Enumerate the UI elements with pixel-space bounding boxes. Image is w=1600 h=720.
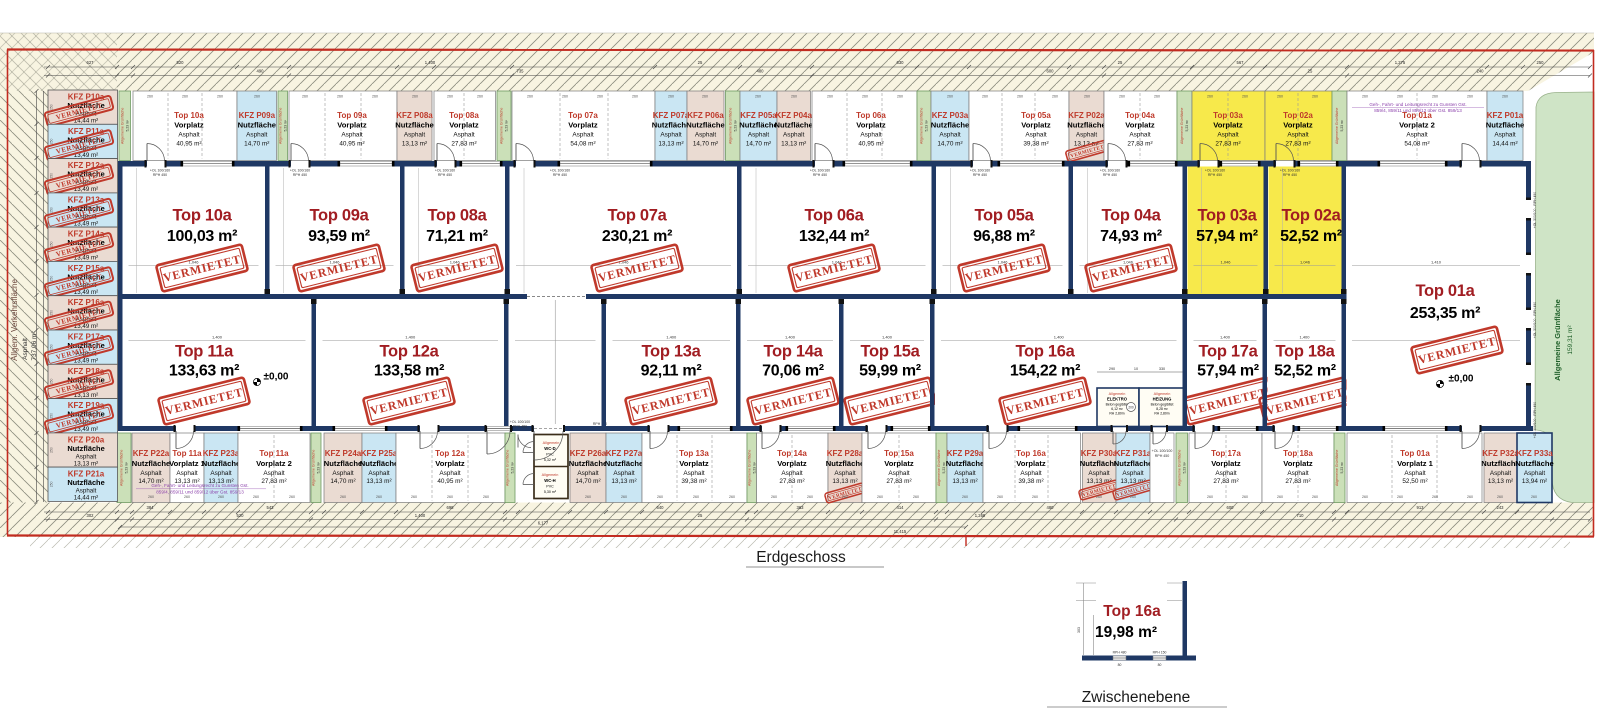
svg-text:913: 913: [1417, 505, 1425, 510]
svg-text:260: 260: [562, 95, 568, 99]
svg-text:13,13 m²: 13,13 m²: [611, 478, 636, 485]
svg-text:HEIZUNG: HEIZUNG: [1153, 397, 1172, 402]
svg-text:260: 260: [148, 495, 154, 499]
svg-text:Nutzfläche: Nutzfläche: [324, 459, 362, 468]
svg-text:230,21 m²: 230,21 m²: [602, 228, 672, 245]
svg-text:93,59 m²: 93,59 m²: [308, 228, 370, 245]
svg-text:260: 260: [1032, 495, 1038, 499]
svg-text:Asphalt: Asphalt: [954, 470, 976, 477]
svg-text:260: 260: [1312, 495, 1318, 499]
svg-text:25: 25: [698, 513, 703, 518]
svg-text:Asphalt: Asphalt: [76, 488, 97, 495]
svg-text:RPH 450: RPH 450: [293, 173, 307, 177]
svg-text:KFZ P28a: KFZ P28a: [827, 449, 864, 458]
svg-text:1,400: 1,400: [785, 335, 796, 340]
svg-text:Top 17a: Top 17a: [1211, 449, 1241, 458]
svg-text:Nutzfläche: Nutzfläche: [1515, 459, 1553, 468]
svg-text:Allgemeine Grünfläche: Allgemeine Grünfläche: [1177, 450, 1181, 486]
svg-text:1,046: 1,046: [1300, 260, 1311, 265]
svg-text:Asphalt: Asphalt: [1287, 470, 1309, 477]
svg-text:1,400: 1,400: [415, 513, 426, 518]
svg-text:Top 11a: Top 11a: [175, 343, 234, 361]
svg-text:Asphalt: Asphalt: [210, 470, 232, 477]
svg-text:260: 260: [1362, 95, 1368, 99]
svg-text:260: 260: [1207, 495, 1213, 499]
svg-text:14,70 m²: 14,70 m²: [693, 141, 718, 148]
svg-text:250: 250: [50, 379, 54, 385]
svg-text:27,83 m²: 27,83 m²: [1213, 478, 1238, 485]
svg-text:±0,00: ±0,00: [1449, 374, 1474, 385]
svg-text:Top 08a: Top 08a: [427, 207, 487, 225]
svg-text:Asphalt: Asphalt: [783, 132, 805, 139]
svg-text:260: 260: [1397, 495, 1403, 499]
svg-text:71,21 m²: 71,21 m²: [426, 228, 488, 245]
svg-text:KFZ P09a: KFZ P09a: [239, 111, 276, 120]
svg-text:13,13 m²: 13,13 m²: [1488, 478, 1513, 485]
svg-text:Top 11a: Top 11a: [259, 449, 289, 458]
svg-text:250: 250: [50, 104, 54, 110]
svg-text:Asphalt: Asphalt: [660, 132, 682, 139]
svg-text:250: 250: [50, 139, 54, 145]
svg-text:100,03 m²: 100,03 m²: [167, 228, 237, 245]
svg-text:260: 260: [1432, 495, 1438, 499]
svg-text:13,13 m²: 13,13 m²: [781, 141, 806, 148]
svg-text:Nutzfläche: Nutzfläche: [652, 121, 690, 130]
svg-text:39,38 m²: 39,38 m²: [1018, 478, 1043, 485]
svg-text:260: 260: [913, 495, 919, 499]
svg-text:133,63 m²: 133,63 m²: [169, 363, 239, 380]
svg-text:260: 260: [947, 95, 953, 99]
svg-text:KFZ P24a: KFZ P24a: [325, 449, 362, 458]
svg-text:Top 09a: Top 09a: [337, 111, 367, 120]
svg-text:Top 05a: Top 05a: [1021, 111, 1051, 120]
svg-text:260: 260: [1467, 95, 1473, 99]
svg-text:Vorplatz: Vorplatz: [174, 121, 204, 130]
svg-text:260: 260: [729, 495, 735, 499]
svg-text:260: 260: [657, 495, 663, 499]
svg-text:Asphalt: Asphalt: [263, 470, 285, 477]
svg-text:57,94 m²: 57,94 m²: [1196, 228, 1258, 245]
svg-text:Top 18a: Top 18a: [1275, 343, 1335, 361]
svg-text:Asphalt: Asphalt: [860, 132, 882, 139]
svg-text:260: 260: [1242, 495, 1248, 499]
svg-text:40,95 m²: 40,95 m²: [339, 141, 364, 148]
svg-text:260: 260: [376, 495, 382, 499]
svg-text:Asphalt: Asphalt: [404, 132, 426, 139]
svg-text:KFZ P06a: KFZ P06a: [687, 111, 724, 120]
svg-text:Allgemeine Grünfläche: Allgemeine Grünfläche: [1335, 450, 1339, 486]
svg-text:RH 2,80m: RH 2,80m: [1109, 412, 1124, 416]
svg-text:KFZ P27a: KFZ P27a: [606, 449, 643, 458]
svg-text:+OL 100/160: +OL 100/160: [550, 169, 570, 173]
svg-text:260: 260: [337, 95, 343, 99]
svg-text:5,32 m²: 5,32 m²: [544, 458, 557, 462]
svg-text:Allgemein: Allgemein: [542, 473, 559, 477]
svg-text:14,44 m²: 14,44 m²: [74, 495, 98, 502]
svg-text:RPH 450: RPH 450: [1103, 173, 1117, 177]
svg-text:520: 520: [237, 513, 245, 518]
svg-text:27,83 m²: 27,83 m²: [261, 478, 286, 485]
svg-text:70,06 m²: 70,06 m²: [762, 363, 824, 380]
svg-text:+OL 100/160: +OL 100/160: [1100, 169, 1120, 173]
svg-text:14,70 m²: 14,70 m²: [937, 141, 962, 148]
svg-text:159,31 m²: 159,31 m²: [1567, 325, 1574, 355]
svg-text:Vorplatz: Vorplatz: [1283, 121, 1313, 130]
svg-text:260: 260: [632, 95, 638, 99]
svg-text:13,13 m²: 13,13 m²: [366, 478, 391, 485]
svg-text:Nutzfläche: Nutzfläche: [686, 121, 724, 130]
svg-text:260: 260: [447, 95, 453, 99]
svg-text:5,23 m²: 5,23 m²: [511, 461, 515, 473]
svg-text:260: 260: [1017, 95, 1023, 99]
svg-text:+OL 100/100: +OL 100/100: [1152, 449, 1173, 453]
svg-text:260: 260: [527, 95, 533, 99]
svg-text:Top 12a: Top 12a: [435, 449, 465, 458]
svg-text:Nutzfläche: Nutzfläche: [605, 459, 643, 468]
svg-text:260: 260: [621, 495, 627, 499]
svg-text:260: 260: [897, 95, 903, 99]
svg-text:Allgemeine Grünfläche: Allgemeine Grünfläche: [1180, 108, 1184, 144]
svg-text:200: 200: [1128, 406, 1134, 410]
svg-text:PVC: PVC: [546, 485, 554, 489]
svg-text:260: 260: [477, 95, 483, 99]
svg-text:1,400: 1,400: [1299, 335, 1310, 340]
svg-text:Top 10a: Top 10a: [172, 207, 232, 225]
svg-text:627: 627: [87, 60, 95, 65]
svg-text:5,23 m²: 5,23 m²: [125, 119, 129, 131]
svg-text:260: 260: [597, 95, 603, 99]
svg-text:Vorplatz 1: Vorplatz 1: [1397, 459, 1434, 468]
svg-text:±0,00: ±0,00: [264, 372, 289, 383]
svg-text:250: 250: [50, 481, 54, 487]
svg-text:260: 260: [1397, 95, 1403, 99]
svg-text:Nutzfläche: Nutzfläche: [67, 444, 104, 453]
svg-text:260: 260: [254, 95, 260, 99]
svg-text:250: 250: [50, 413, 54, 419]
svg-text:260: 260: [1362, 495, 1368, 499]
svg-text:260: 260: [807, 495, 813, 499]
svg-text:13,13 m²: 13,13 m²: [952, 478, 977, 485]
svg-text:Top 02a: Top 02a: [1283, 111, 1313, 120]
svg-text:Vorplatz: Vorplatz: [884, 459, 914, 468]
svg-text:Asphalt: Asphalt: [140, 470, 162, 477]
svg-text:1,400: 1,400: [425, 60, 436, 65]
svg-text:260: 260: [1154, 95, 1160, 99]
svg-text:54,08 m²: 54,08 m²: [570, 141, 595, 148]
svg-text:Allgemein: Allgemein: [1154, 392, 1171, 396]
svg-text:+OL 300/100 - RPH 490: +OL 300/100 - RPH 490: [1533, 302, 1537, 338]
svg-text:Top 16a: Top 16a: [1015, 343, 1075, 361]
svg-text:132,44 m²: 132,44 m²: [799, 228, 869, 245]
svg-text:260: 260: [1242, 95, 1248, 99]
svg-text:1,275: 1,275: [1395, 60, 1406, 65]
svg-text:260: 260: [585, 495, 591, 499]
svg-text:543: 543: [267, 505, 275, 510]
svg-text:+OL 100/100: +OL 100/100: [510, 420, 530, 424]
svg-text:Nutzfläche: Nutzfläche: [238, 121, 276, 130]
svg-text:Erdgeschoss: Erdgeschoss: [756, 549, 846, 566]
svg-text:Vorplatz: Vorplatz: [435, 459, 465, 468]
svg-text:Top 02a: Top 02a: [1281, 207, 1341, 225]
svg-text:Asphalt: Asphalt: [341, 132, 363, 139]
svg-text:19,98 m²: 19,98 m²: [1095, 624, 1157, 641]
svg-text:6,177: 6,177: [538, 521, 549, 526]
svg-text:Vorplatz: Vorplatz: [777, 459, 807, 468]
svg-text:Top 07a: Top 07a: [607, 207, 667, 225]
svg-text:490: 490: [257, 69, 265, 74]
svg-text:59,99 m²: 59,99 m²: [859, 363, 921, 380]
svg-text:Vorplatz: Vorplatz: [679, 459, 709, 468]
svg-text:Top 13a: Top 13a: [679, 449, 709, 458]
svg-text:6,12 m²: 6,12 m²: [1111, 407, 1123, 411]
svg-text:260: 260: [483, 495, 489, 499]
svg-text:KFZ P08a: KFZ P08a: [396, 111, 433, 120]
svg-text:Top 16a: Top 16a: [1016, 449, 1046, 458]
svg-text:40,95 m²: 40,95 m²: [176, 141, 201, 148]
svg-text:Asphalt: Asphalt: [178, 132, 200, 139]
svg-text:Top 01a: Top 01a: [1415, 282, 1475, 300]
svg-text:260: 260: [1277, 495, 1283, 499]
svg-text:Top 17a: Top 17a: [1198, 343, 1258, 361]
svg-text:RH 2,80m: RH 2,80m: [1154, 412, 1169, 416]
svg-text:Vorplatz 2: Vorplatz 2: [1399, 121, 1435, 130]
svg-text:25: 25: [1308, 69, 1313, 74]
svg-text:260: 260: [372, 95, 378, 99]
svg-text:Asphalt: Asphalt: [572, 132, 594, 139]
svg-text:Top 12a: Top 12a: [379, 343, 439, 361]
svg-text:640: 640: [657, 505, 665, 510]
svg-text:RPH 450: RPH 450: [553, 173, 567, 177]
svg-text:Top 18a: Top 18a: [1283, 449, 1313, 458]
svg-text:Vorplatz: Vorplatz: [856, 121, 886, 130]
svg-text:+OL 100/160: +OL 100/160: [290, 169, 310, 173]
svg-text:384: 384: [147, 505, 155, 510]
svg-text:Nutzfläche: Nutzfläche: [202, 459, 240, 468]
svg-text:+OL 100/160: +OL 100/160: [810, 169, 830, 173]
svg-text:567: 567: [1237, 60, 1245, 65]
svg-text:600: 600: [1227, 505, 1235, 510]
svg-text:859/4, 859/11 und 859/12 über: 859/4, 859/11 und 859/12 über Gst. 859/1…: [156, 490, 244, 495]
svg-text:RPH 450: RPH 450: [813, 173, 827, 177]
svg-text:RPH 480: RPH 480: [1113, 651, 1127, 655]
svg-text:260: 260: [668, 95, 674, 99]
svg-text:Asphalt: Asphalt: [246, 132, 268, 139]
svg-text:Nutzfläche: Nutzfläche: [931, 121, 969, 130]
svg-text:Allgemeine Grünfläche: Allgemeine Grünfläche: [120, 108, 124, 144]
svg-text:5,30 m²: 5,30 m²: [544, 490, 557, 494]
svg-text:Vorplatz: Vorplatz: [337, 121, 367, 130]
svg-text:Vorplatz: Vorplatz: [1283, 459, 1313, 468]
svg-text:Asphalt: Asphalt: [695, 132, 717, 139]
svg-text:Top 03a: Top 03a: [1197, 207, 1257, 225]
svg-text:+OL 100/160: +OL 100/160: [970, 169, 990, 173]
svg-text:Asphalt: Asphalt: [76, 453, 97, 460]
svg-text:Asphalt: Asphalt: [1020, 470, 1042, 477]
svg-text:260: 260: [693, 495, 699, 499]
svg-text:Nutzfläche: Nutzfläche: [395, 121, 433, 130]
svg-text:Top 04a: Top 04a: [1125, 111, 1155, 120]
svg-text:260: 260: [771, 495, 777, 499]
svg-text:290: 290: [1109, 367, 1115, 371]
svg-text:KFZ P03a: KFZ P03a: [932, 111, 969, 120]
svg-text:+OL 300/100 - RPH 490: +OL 300/100 - RPH 490: [1533, 192, 1537, 228]
svg-text:KFZ P05a: KFZ P05a: [740, 111, 777, 120]
svg-text:Allgem. Verkehrsfläche: Allgem. Verkehrsfläche: [10, 279, 19, 361]
svg-text:260: 260: [217, 95, 223, 99]
svg-text:Nutzfläche: Nutzfläche: [1114, 459, 1152, 468]
svg-text:Top 04a: Top 04a: [1101, 207, 1161, 225]
svg-text:40,95 m²: 40,95 m²: [858, 141, 883, 148]
svg-text:5,23 m²: 5,23 m²: [1185, 119, 1189, 131]
svg-text:260: 260: [412, 95, 418, 99]
svg-text:Nutzfläche: Nutzfläche: [67, 478, 104, 487]
svg-text:260: 260: [1531, 495, 1537, 499]
svg-text:14,44 m²: 14,44 m²: [1492, 141, 1517, 148]
svg-text:13,13 m²: 13,13 m²: [658, 141, 683, 148]
svg-text:Nutzfläche: Nutzfläche: [1481, 459, 1519, 468]
svg-text:Asphalt: Asphalt: [888, 470, 910, 477]
svg-text:Top 05a: Top 05a: [974, 207, 1034, 225]
svg-text:250: 250: [50, 173, 54, 179]
svg-text:Vorplatz: Vorplatz: [1211, 459, 1241, 468]
svg-text:5,23 m²: 5,23 m²: [505, 119, 509, 131]
svg-text:520: 520: [177, 60, 185, 65]
svg-text:Nutzfläche: Nutzfläche: [826, 459, 864, 468]
svg-text:39,38 m²: 39,38 m²: [681, 478, 706, 485]
svg-text:+OL 300/100 - RPH 490: +OL 300/100 - RPH 490: [1533, 402, 1537, 438]
svg-text:260: 260: [1277, 95, 1283, 99]
svg-text:14,70 m²: 14,70 m²: [575, 478, 600, 485]
svg-text:260: 260: [997, 495, 1003, 499]
svg-text:Asphalt: Asphalt: [368, 470, 390, 477]
svg-text:Top 09a: Top 09a: [309, 207, 369, 225]
svg-text:260: 260: [182, 95, 188, 99]
svg-text:250: 250: [50, 344, 54, 350]
svg-text:14,70 m²: 14,70 m²: [330, 478, 355, 485]
svg-text:260: 260: [1096, 495, 1102, 499]
svg-text:250: 250: [50, 310, 54, 316]
svg-text:243: 243: [1497, 505, 1505, 510]
svg-text:RPH 450: RPH 450: [438, 173, 452, 177]
svg-text:735: 735: [517, 69, 525, 74]
svg-text:Top 14a: Top 14a: [777, 449, 807, 458]
svg-text:KFZ P02a: KFZ P02a: [1068, 111, 1105, 120]
svg-text:5,23 m²: 5,23 m²: [1340, 119, 1344, 131]
svg-text:Asphalt: Asphalt: [1404, 470, 1426, 477]
svg-text:414: 414: [897, 505, 905, 510]
svg-text:Asphalt: Asphalt: [1490, 470, 1512, 477]
svg-text:5,23 m²: 5,23 m²: [752, 461, 756, 473]
svg-text:250: 250: [50, 276, 54, 282]
svg-text:260: 260: [340, 495, 346, 499]
svg-text:Asphalt: Asphalt: [1215, 470, 1237, 477]
svg-text:Geh-, Fahrt- und Leitungsrecht: Geh-, Fahrt- und Leitungsrecht zu Gunste…: [151, 483, 248, 488]
svg-text:260: 260: [791, 95, 797, 99]
svg-text:Vorplatz: Vorplatz: [1021, 121, 1051, 130]
svg-text:1,400: 1,400: [666, 335, 677, 340]
svg-text:Vorplatz: Vorplatz: [1213, 121, 1243, 130]
svg-text:260: 260: [447, 495, 453, 499]
svg-text:Asphalt: Asphalt: [748, 132, 770, 139]
svg-text:RPH 450: RPH 450: [1155, 454, 1170, 458]
svg-text:Allgemeine Grünfläche: Allgemeine Grünfläche: [1553, 299, 1562, 381]
svg-text:Vorplatz: Vorplatz: [1125, 121, 1155, 130]
svg-text:250: 250: [50, 447, 54, 453]
svg-text:630: 630: [897, 60, 905, 65]
svg-text:5,23 m²: 5,23 m²: [1340, 461, 1344, 473]
svg-text:Asphalt: Asphalt: [1406, 132, 1428, 139]
svg-text:480: 480: [757, 69, 765, 74]
svg-text:Asphalt: Asphalt: [613, 470, 635, 477]
svg-text:13,94 m²: 13,94 m²: [1522, 478, 1547, 485]
svg-text:260: 260: [1130, 495, 1136, 499]
svg-text:KFZ P25a: KFZ P25a: [361, 449, 398, 458]
svg-text:+OL 100/160: +OL 100/160: [150, 169, 170, 173]
svg-text:Zwischenebene: Zwischenebene: [1082, 689, 1191, 706]
svg-text:Nutzfläche: Nutzfläche: [739, 121, 777, 130]
svg-text:14,70 m²: 14,70 m²: [244, 141, 269, 148]
svg-text:27,83 m²: 27,83 m²: [779, 478, 804, 485]
svg-text:8,28 m²: 8,28 m²: [1156, 407, 1168, 411]
svg-text:Vorplatz 1: Vorplatz 1: [169, 459, 206, 468]
svg-text:260: 260: [411, 495, 417, 499]
svg-text:Allgemeine Grünfläche: Allgemeine Grünfläche: [120, 450, 124, 486]
svg-text:Vorplatz: Vorplatz: [1016, 459, 1046, 468]
svg-text:11,415: 11,415: [894, 529, 907, 534]
svg-text:74,93 m²: 74,93 m²: [1100, 228, 1162, 245]
svg-text:480: 480: [1047, 505, 1055, 510]
svg-text:+OL 100/160: +OL 100/160: [1205, 169, 1225, 173]
svg-text:1,400: 1,400: [212, 335, 223, 340]
svg-text:5,23 m²: 5,23 m²: [733, 119, 737, 131]
svg-text:Vorplatz 2: Vorplatz 2: [256, 459, 292, 468]
svg-text:260: 260: [962, 495, 968, 499]
svg-text:Vorplatz: Vorplatz: [449, 121, 479, 130]
svg-text:Top 14a: Top 14a: [763, 343, 823, 361]
svg-text:Asphalt: Asphalt: [453, 132, 475, 139]
svg-text:KFZ P23a: KFZ P23a: [203, 449, 240, 458]
svg-text:Asphalt: Asphalt: [1129, 132, 1151, 139]
svg-text:Asphalt: Asphalt: [1025, 132, 1047, 139]
svg-text:Asphalt: Asphalt: [683, 470, 705, 477]
svg-text:Vorplatz: Vorplatz: [568, 121, 598, 130]
svg-text:5,23 m²: 5,23 m²: [283, 119, 287, 131]
svg-text:Top 01a: Top 01a: [1400, 449, 1430, 458]
svg-text:52,52 m²: 52,52 m²: [1274, 363, 1336, 380]
svg-text:Nutzfläche: Nutzfläche: [1486, 121, 1524, 130]
svg-text:698: 698: [447, 505, 455, 510]
svg-text:92,11 m²: 92,11 m²: [641, 363, 702, 380]
svg-text:Nutzfläche: Nutzfläche: [1067, 121, 1105, 130]
svg-text:RPH 450: RPH 450: [973, 173, 987, 177]
svg-text:Asphalt: Asphalt: [577, 470, 599, 477]
svg-text:Asphalt: Asphalt: [332, 470, 354, 477]
svg-text:Allgemeine Grünfläche: Allgemeine Grünfläche: [920, 108, 924, 144]
svg-text:5,23 m²: 5,23 m²: [125, 461, 129, 473]
svg-text:27,83 m²: 27,83 m²: [1285, 141, 1310, 148]
svg-text:260: 260: [702, 95, 708, 99]
svg-text:Top 15a: Top 15a: [884, 449, 914, 458]
svg-text:330: 330: [1159, 367, 1165, 371]
svg-text:363: 363: [797, 505, 805, 510]
svg-text:Asphalt: Asphalt: [439, 470, 461, 477]
svg-text:Allgemeine Grünfläche: Allgemeine Grünfläche: [278, 108, 282, 144]
svg-text:240: 240: [1477, 69, 1485, 74]
svg-text:260: 260: [1432, 95, 1438, 99]
svg-text:KFZ P30a: KFZ P30a: [1081, 449, 1118, 458]
svg-text:710: 710: [1297, 513, 1305, 518]
svg-text:13,13 m²: 13,13 m²: [832, 478, 857, 485]
